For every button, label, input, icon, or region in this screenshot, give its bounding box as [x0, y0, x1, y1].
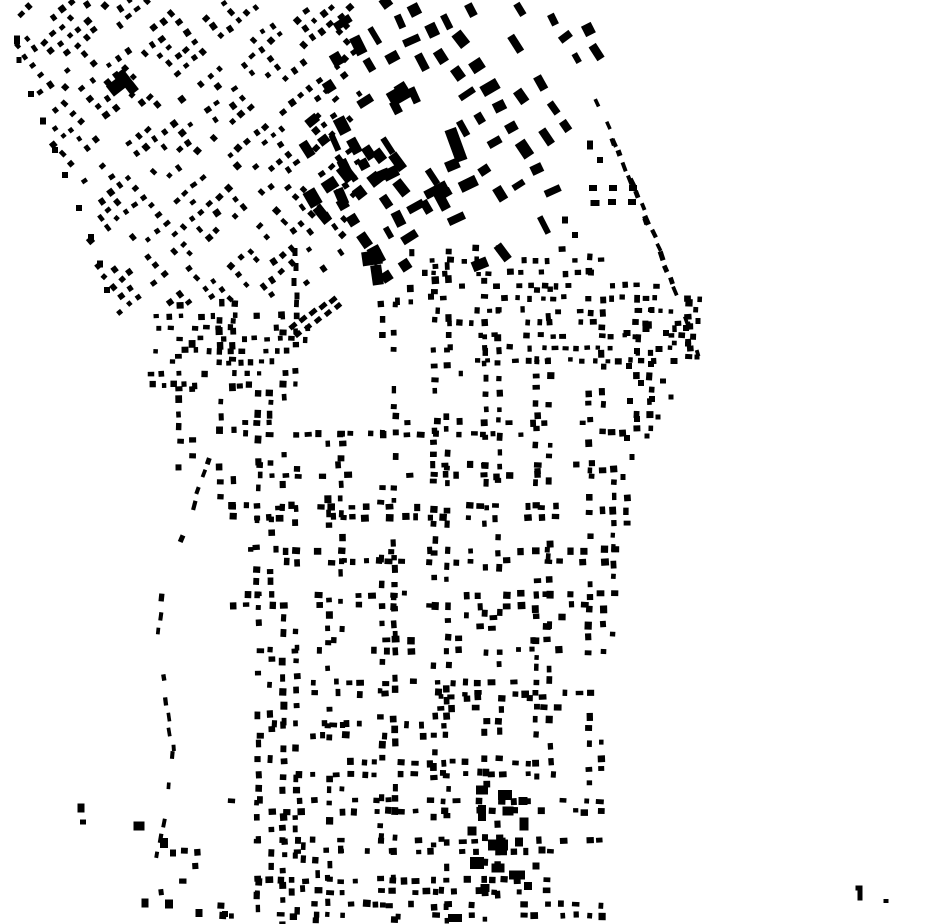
building — [279, 787, 285, 794]
building — [229, 913, 234, 918]
building — [248, 359, 253, 365]
building — [499, 706, 504, 713]
building — [377, 301, 384, 308]
building — [211, 313, 215, 319]
building — [181, 848, 188, 854]
building — [438, 837, 444, 842]
building — [172, 745, 176, 752]
building — [117, 292, 125, 300]
building — [652, 295, 657, 300]
building — [416, 850, 421, 854]
building — [168, 326, 174, 331]
building — [632, 334, 637, 339]
building — [221, 336, 227, 342]
building — [368, 593, 376, 599]
building — [306, 246, 312, 252]
building — [431, 842, 436, 847]
building — [472, 245, 479, 252]
building — [534, 471, 541, 478]
building — [443, 732, 449, 738]
building — [212, 116, 219, 123]
building — [433, 889, 439, 895]
building — [411, 878, 419, 884]
building — [559, 798, 566, 803]
building — [430, 775, 438, 781]
building — [248, 547, 253, 552]
building — [326, 817, 333, 825]
building — [229, 101, 238, 110]
building — [633, 425, 640, 431]
building — [254, 410, 261, 418]
building — [401, 877, 408, 885]
building — [497, 661, 502, 667]
building — [116, 21, 124, 29]
building — [430, 439, 437, 444]
building — [166, 314, 172, 320]
building — [597, 590, 605, 596]
district-central-street-grid — [175, 249, 693, 924]
building — [277, 31, 283, 37]
building — [293, 629, 299, 635]
building — [601, 545, 608, 552]
building — [511, 848, 518, 855]
building — [40, 38, 48, 46]
building — [332, 95, 340, 103]
building — [538, 127, 555, 146]
building — [263, 349, 268, 354]
building — [346, 680, 352, 685]
building — [537, 319, 542, 325]
building — [452, 798, 460, 803]
building — [420, 733, 427, 740]
building — [158, 612, 163, 621]
building — [68, 127, 75, 134]
building — [491, 889, 497, 895]
building — [610, 465, 618, 472]
building — [633, 190, 640, 199]
building — [272, 206, 281, 215]
building — [530, 637, 535, 643]
building — [509, 871, 525, 880]
building — [430, 461, 435, 468]
building — [78, 804, 85, 813]
building — [495, 755, 503, 761]
building — [432, 749, 438, 755]
building — [586, 837, 594, 843]
building — [520, 913, 527, 918]
building — [587, 533, 593, 539]
building — [249, 69, 256, 76]
building — [372, 759, 377, 764]
building — [441, 807, 448, 814]
building — [630, 454, 635, 460]
building — [181, 381, 186, 387]
building — [253, 420, 260, 426]
building — [177, 95, 186, 104]
building — [481, 729, 487, 736]
building — [685, 342, 691, 347]
building — [251, 335, 257, 340]
building — [113, 198, 122, 207]
building — [336, 689, 341, 696]
building — [289, 877, 295, 883]
building — [558, 246, 565, 252]
building — [266, 432, 274, 437]
building — [433, 430, 439, 436]
building — [468, 548, 473, 553]
building — [322, 720, 328, 726]
building — [488, 771, 495, 777]
building — [326, 707, 332, 712]
building — [413, 513, 418, 520]
building — [560, 838, 568, 844]
building — [645, 434, 650, 439]
building — [684, 295, 691, 301]
building — [481, 419, 488, 426]
building — [311, 797, 318, 803]
building — [52, 125, 59, 132]
building — [488, 679, 496, 685]
building — [138, 98, 147, 107]
building — [314, 316, 323, 324]
building — [588, 269, 594, 275]
building — [634, 348, 640, 354]
building — [328, 4, 335, 11]
building — [272, 720, 277, 727]
building — [497, 433, 503, 441]
building — [270, 132, 276, 138]
building — [444, 508, 451, 514]
building — [189, 437, 196, 442]
building — [533, 373, 540, 378]
building — [478, 333, 483, 338]
building — [338, 495, 343, 501]
building — [349, 505, 356, 509]
building — [409, 249, 414, 256]
building — [145, 237, 151, 243]
building — [446, 662, 452, 669]
building — [432, 912, 440, 918]
building — [379, 485, 385, 490]
building — [331, 223, 339, 231]
building — [197, 80, 205, 88]
building — [255, 390, 262, 397]
building — [447, 211, 466, 226]
building — [634, 416, 640, 422]
building — [259, 28, 265, 34]
building — [187, 122, 193, 128]
building — [471, 256, 490, 272]
building — [658, 308, 662, 312]
building — [598, 766, 604, 771]
building — [278, 125, 285, 132]
building — [253, 129, 261, 137]
building — [256, 462, 263, 468]
building — [319, 264, 327, 273]
building — [37, 71, 44, 78]
building — [431, 289, 438, 294]
building — [159, 17, 168, 26]
building — [380, 316, 385, 323]
building — [432, 536, 438, 544]
building — [268, 849, 274, 857]
building — [398, 258, 413, 273]
building — [268, 656, 275, 661]
building — [462, 758, 469, 765]
building — [204, 106, 213, 114]
building — [278, 312, 283, 319]
building — [83, 34, 91, 42]
building — [316, 602, 323, 608]
building — [414, 52, 430, 72]
building — [484, 406, 489, 412]
building — [343, 38, 351, 46]
building — [331, 513, 336, 520]
building — [587, 594, 593, 600]
building — [226, 361, 231, 366]
building — [113, 215, 120, 222]
building — [611, 533, 616, 538]
building — [609, 185, 617, 191]
building — [52, 147, 58, 153]
building — [496, 347, 502, 354]
building — [417, 431, 425, 437]
building — [133, 5, 141, 12]
building — [540, 704, 548, 710]
building — [599, 428, 606, 434]
building — [453, 472, 459, 479]
building — [483, 859, 488, 866]
building — [533, 716, 538, 723]
building — [629, 185, 637, 191]
building — [258, 46, 266, 54]
building — [578, 319, 583, 325]
building — [573, 346, 579, 352]
building — [525, 319, 530, 325]
building — [149, 41, 156, 49]
building — [533, 591, 539, 599]
building — [491, 332, 497, 337]
building — [174, 52, 182, 60]
building — [426, 559, 432, 565]
building — [858, 890, 863, 901]
building — [340, 913, 345, 918]
district-nw-diagonal-grid — [14, 0, 362, 316]
building — [252, 163, 260, 170]
building — [125, 13, 133, 20]
building — [319, 474, 326, 479]
building — [361, 515, 369, 522]
building — [434, 418, 441, 425]
building — [170, 751, 175, 759]
building — [279, 688, 286, 696]
building — [148, 372, 155, 377]
building — [669, 309, 674, 314]
building — [518, 432, 523, 437]
building — [161, 674, 166, 681]
building — [247, 248, 254, 255]
building — [601, 558, 609, 566]
building — [468, 559, 474, 564]
building — [324, 495, 331, 503]
building — [267, 647, 273, 653]
building — [153, 349, 158, 354]
building — [280, 218, 288, 226]
building — [476, 786, 488, 795]
building — [464, 2, 478, 18]
building — [489, 808, 496, 815]
building — [154, 851, 159, 858]
building — [100, 1, 109, 10]
building — [485, 358, 490, 362]
building — [17, 57, 22, 63]
building — [587, 141, 593, 150]
building — [171, 231, 178, 238]
building — [40, 118, 46, 125]
building — [264, 337, 270, 341]
building — [372, 902, 378, 908]
building — [610, 561, 616, 569]
building — [391, 347, 397, 352]
building — [217, 494, 224, 500]
building — [443, 471, 449, 478]
building — [256, 771, 262, 778]
building — [431, 377, 439, 382]
building — [176, 290, 185, 299]
building — [335, 461, 341, 468]
building — [447, 256, 454, 262]
building — [143, 0, 151, 5]
building — [371, 647, 377, 654]
building — [166, 298, 175, 307]
building — [541, 296, 546, 300]
building — [280, 745, 286, 752]
building — [301, 842, 306, 850]
building — [293, 687, 299, 694]
building — [334, 678, 339, 684]
building — [431, 662, 437, 669]
building — [267, 55, 275, 63]
building — [427, 547, 432, 554]
building — [538, 505, 545, 510]
building — [281, 614, 287, 622]
building — [81, 177, 88, 184]
district-ne-large-blocks — [322, 0, 605, 272]
building — [256, 905, 261, 913]
building — [545, 402, 551, 408]
building — [643, 326, 650, 332]
building — [46, 80, 55, 89]
building — [512, 760, 519, 765]
building — [598, 755, 606, 762]
building — [255, 671, 261, 676]
building — [385, 504, 393, 510]
building — [513, 88, 529, 106]
building — [183, 28, 192, 37]
building — [263, 234, 270, 241]
building — [391, 330, 397, 336]
building — [257, 371, 261, 375]
building — [444, 839, 450, 846]
building — [175, 164, 183, 172]
building — [380, 431, 386, 438]
building — [216, 463, 223, 470]
building — [185, 298, 193, 305]
building — [601, 364, 606, 370]
building — [419, 722, 424, 729]
building — [294, 703, 300, 708]
building — [158, 371, 164, 377]
building — [167, 9, 176, 18]
building — [598, 913, 605, 920]
building — [183, 62, 190, 69]
building — [226, 25, 234, 34]
building — [252, 4, 259, 11]
building — [326, 510, 331, 518]
building — [299, 41, 308, 50]
building — [445, 602, 451, 610]
building — [293, 381, 297, 386]
building — [231, 476, 237, 484]
building — [124, 47, 132, 55]
building — [550, 297, 556, 302]
building — [316, 77, 324, 84]
building — [67, 32, 74, 39]
building — [433, 48, 449, 65]
building — [326, 611, 333, 619]
building — [59, 150, 67, 158]
building — [293, 720, 298, 726]
building — [217, 479, 224, 484]
building — [294, 559, 300, 567]
building — [430, 521, 436, 527]
building — [585, 767, 592, 772]
building — [488, 840, 508, 851]
building — [151, 135, 158, 143]
building — [696, 318, 701, 324]
building — [628, 357, 633, 363]
building — [611, 479, 617, 485]
building — [184, 139, 192, 147]
building — [547, 287, 552, 292]
building — [231, 300, 238, 307]
building — [456, 432, 461, 438]
building — [487, 309, 492, 313]
building — [450, 759, 456, 764]
building — [364, 558, 369, 563]
building — [514, 879, 521, 884]
building — [569, 601, 574, 607]
building — [448, 344, 453, 350]
building — [558, 614, 565, 621]
building — [476, 503, 484, 509]
building — [257, 648, 264, 653]
building — [624, 435, 630, 441]
building — [638, 380, 644, 386]
building — [215, 193, 224, 202]
building — [292, 193, 300, 201]
building — [325, 666, 330, 672]
building — [517, 590, 525, 597]
building — [317, 504, 324, 510]
building — [275, 158, 283, 166]
building — [229, 513, 236, 520]
building — [312, 857, 319, 864]
building — [127, 0, 133, 4]
building — [281, 758, 288, 764]
building — [315, 430, 321, 437]
building — [201, 469, 207, 478]
